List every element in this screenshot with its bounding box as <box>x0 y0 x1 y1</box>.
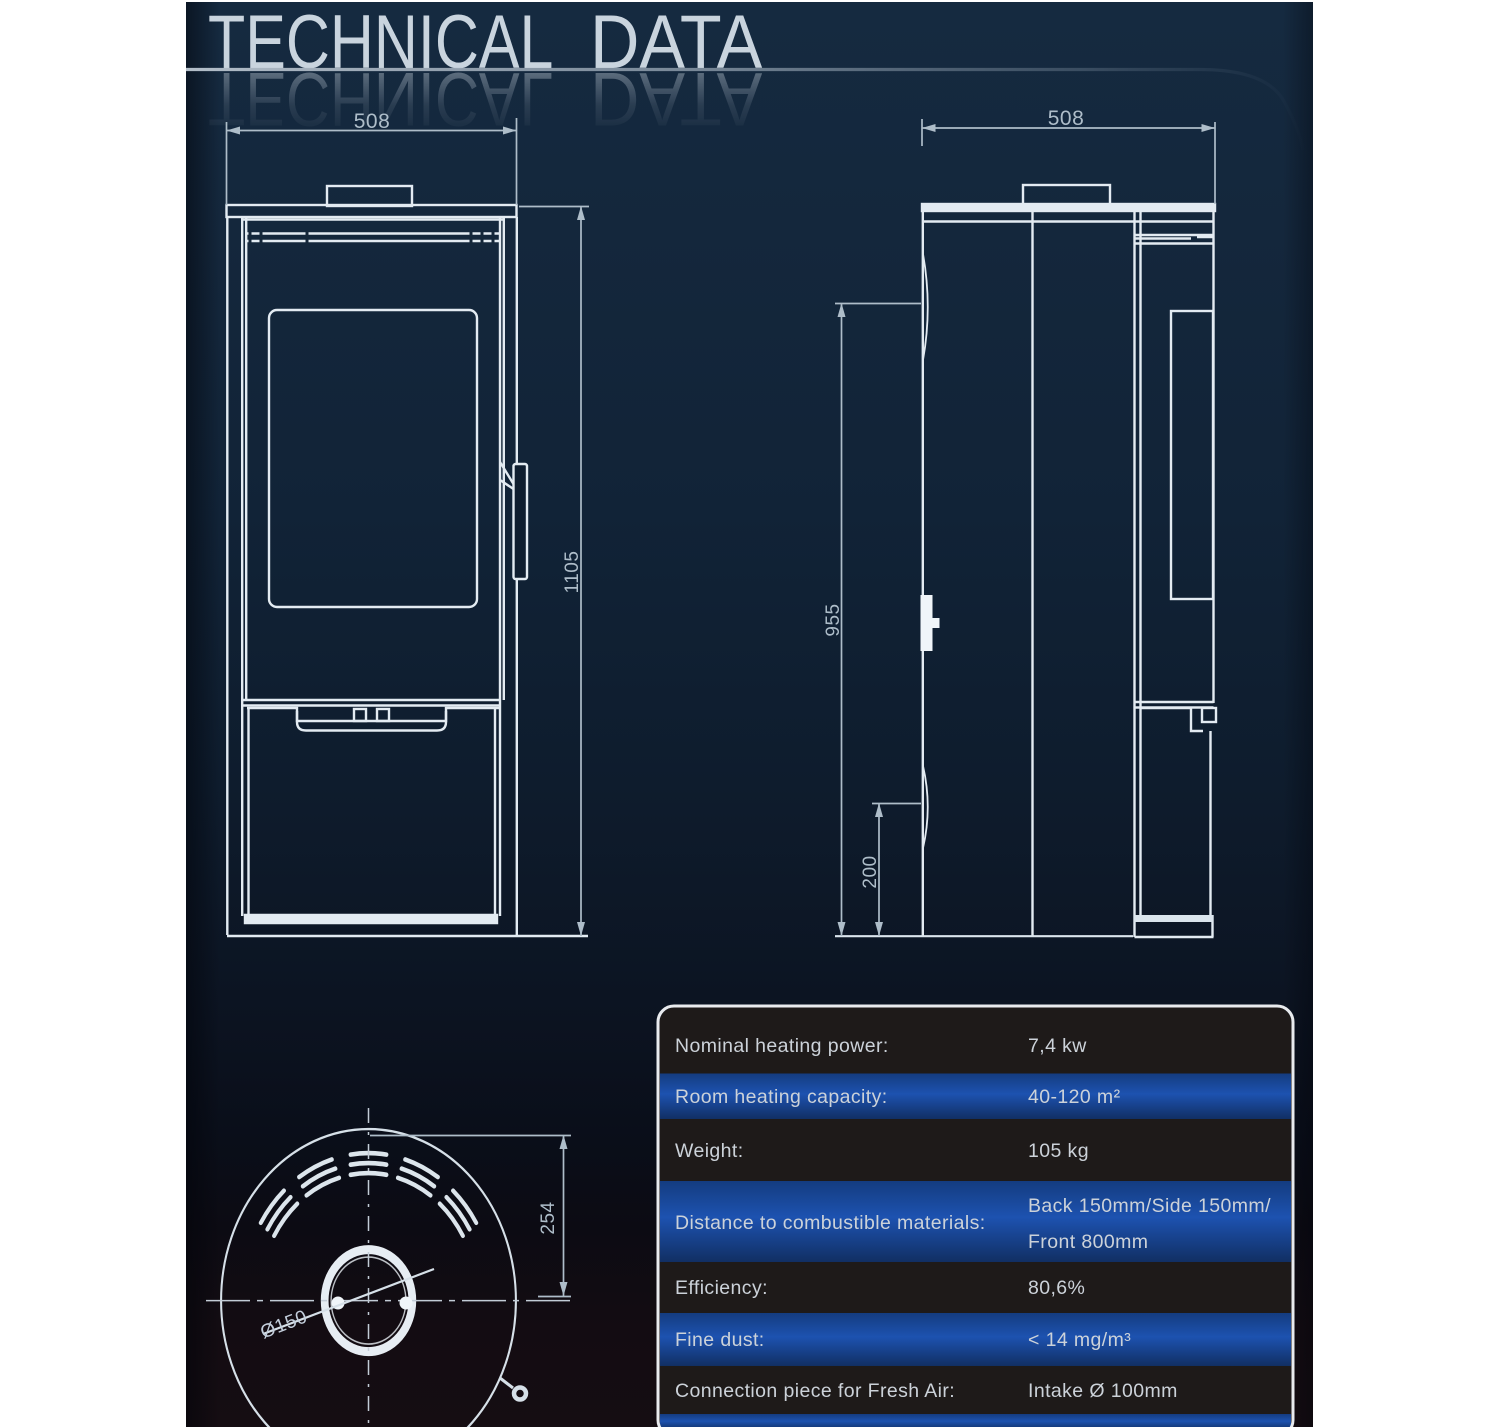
svg-text:955: 955 <box>823 603 844 636</box>
svg-text:Distance to combustible materi: Distance to combustible materials: <box>675 1212 986 1234</box>
svg-text:Front 800mm: Front 800mm <box>1028 1231 1148 1253</box>
svg-text:Intake Ø 100mm: Intake Ø 100mm <box>1028 1380 1178 1402</box>
svg-text:Weight:: Weight: <box>675 1140 744 1162</box>
svg-text:Back 150mm/Side 150mm/: Back 150mm/Side 150mm/ <box>1028 1195 1271 1217</box>
svg-text:200: 200 <box>860 855 881 888</box>
svg-text:< 14 mg/m³: < 14 mg/m³ <box>1028 1329 1131 1351</box>
svg-text:7,4 kw: 7,4 kw <box>1028 1035 1087 1057</box>
svg-text:1105: 1105 <box>562 551 583 594</box>
svg-text:254: 254 <box>538 1201 559 1234</box>
svg-text:Connection piece for Fresh Air: Connection piece for Fresh Air: <box>675 1380 955 1402</box>
svg-text:105 kg: 105 kg <box>1028 1140 1089 1162</box>
svg-text:40-120 m²: 40-120 m² <box>1028 1086 1121 1108</box>
svg-text:508: 508 <box>1048 107 1085 130</box>
svg-text:Efficiency:: Efficiency: <box>675 1277 768 1299</box>
svg-text:Fine dust:: Fine dust: <box>675 1329 765 1351</box>
svg-text:508: 508 <box>354 110 391 133</box>
svg-text:Nominal heating power:: Nominal heating power: <box>675 1035 889 1057</box>
svg-text:Room heating capacity:: Room heating capacity: <box>675 1086 888 1108</box>
svg-text:80,6%: 80,6% <box>1028 1277 1085 1299</box>
